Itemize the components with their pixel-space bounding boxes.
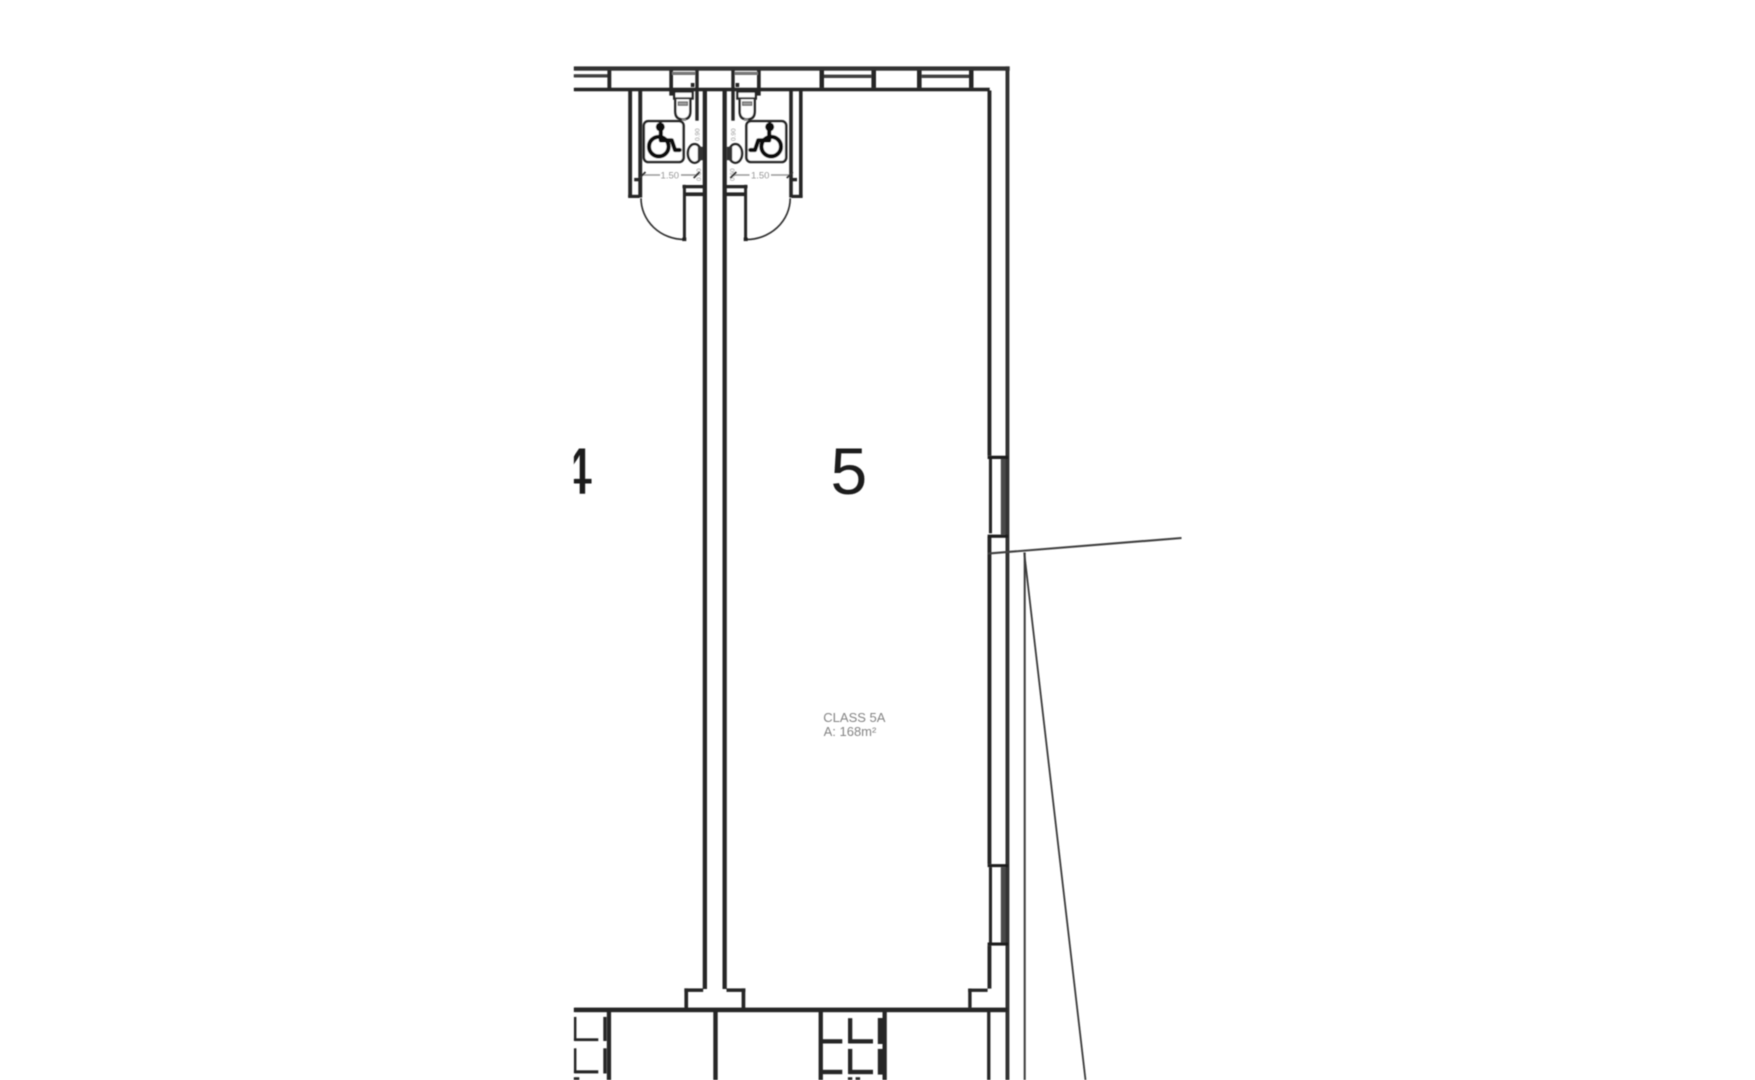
svg-text:0.90: 0.90 xyxy=(695,128,702,141)
svg-text:5: 5 xyxy=(830,434,867,508)
svg-text:1.50: 1.50 xyxy=(751,171,770,182)
svg-text:CLASS 5A: CLASS 5A xyxy=(823,710,885,725)
svg-text:A: 168m²: A: 168m² xyxy=(824,724,877,739)
svg-text:1.50: 1.50 xyxy=(661,171,680,182)
svg-text:0.90: 0.90 xyxy=(731,128,738,141)
